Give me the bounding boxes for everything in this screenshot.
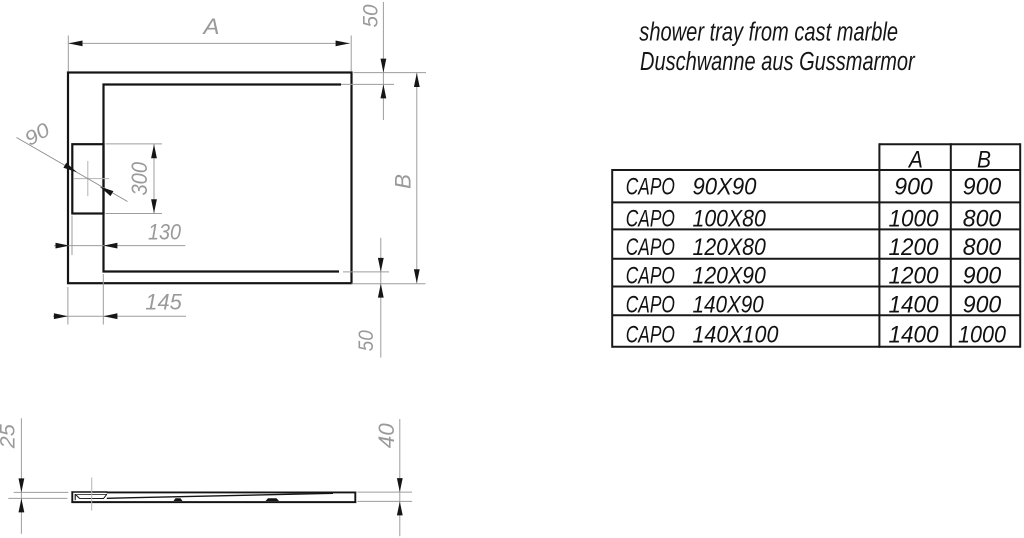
svg-text:A: A: [907, 146, 923, 173]
svg-text:145: 145: [145, 290, 182, 315]
svg-text:1200: 1200: [889, 262, 939, 289]
svg-text:CAPO: CAPO: [626, 291, 675, 318]
svg-text:1400: 1400: [889, 291, 939, 318]
svg-text:CAPO: CAPO: [626, 174, 675, 201]
svg-text:B: B: [977, 146, 991, 173]
svg-text:900: 900: [894, 174, 933, 201]
svg-text:100X80: 100X80: [693, 206, 767, 233]
svg-text:CAPO: CAPO: [626, 206, 675, 233]
svg-text:140X90: 140X90: [693, 291, 765, 318]
svg-text:40: 40: [374, 423, 399, 449]
svg-text:140X100: 140X100: [693, 322, 779, 349]
svg-text:CAPO: CAPO: [626, 322, 675, 349]
svg-text:1000: 1000: [889, 206, 939, 233]
svg-text:CAPO: CAPO: [626, 262, 675, 289]
svg-text:800: 800: [963, 234, 1002, 261]
svg-text:1000: 1000: [958, 322, 1006, 349]
svg-text:800: 800: [963, 206, 1002, 233]
svg-text:1400: 1400: [889, 322, 939, 349]
svg-text:900: 900: [963, 174, 1002, 201]
svg-text:50: 50: [355, 330, 378, 351]
svg-text:900: 900: [963, 262, 1002, 289]
svg-text:1200: 1200: [889, 234, 939, 261]
svg-text:CAPO: CAPO: [626, 234, 675, 261]
svg-text:25: 25: [0, 424, 19, 449]
svg-text:90X90: 90X90: [693, 174, 757, 201]
svg-text:120X80: 120X80: [693, 234, 767, 261]
svg-text:300: 300: [127, 161, 152, 195]
svg-text:Duschwanne aus Gussmarmor: Duschwanne aus Gussmarmor: [640, 48, 916, 76]
svg-text:130: 130: [148, 220, 182, 245]
svg-text:900: 900: [963, 291, 1002, 318]
svg-text:shower tray from cast marble: shower tray from cast marble: [639, 19, 898, 47]
svg-text:A: A: [201, 14, 219, 39]
svg-text:B: B: [391, 174, 416, 189]
svg-text:120X90: 120X90: [693, 262, 767, 289]
svg-text:90: 90: [21, 119, 54, 151]
svg-text:50: 50: [360, 4, 383, 27]
